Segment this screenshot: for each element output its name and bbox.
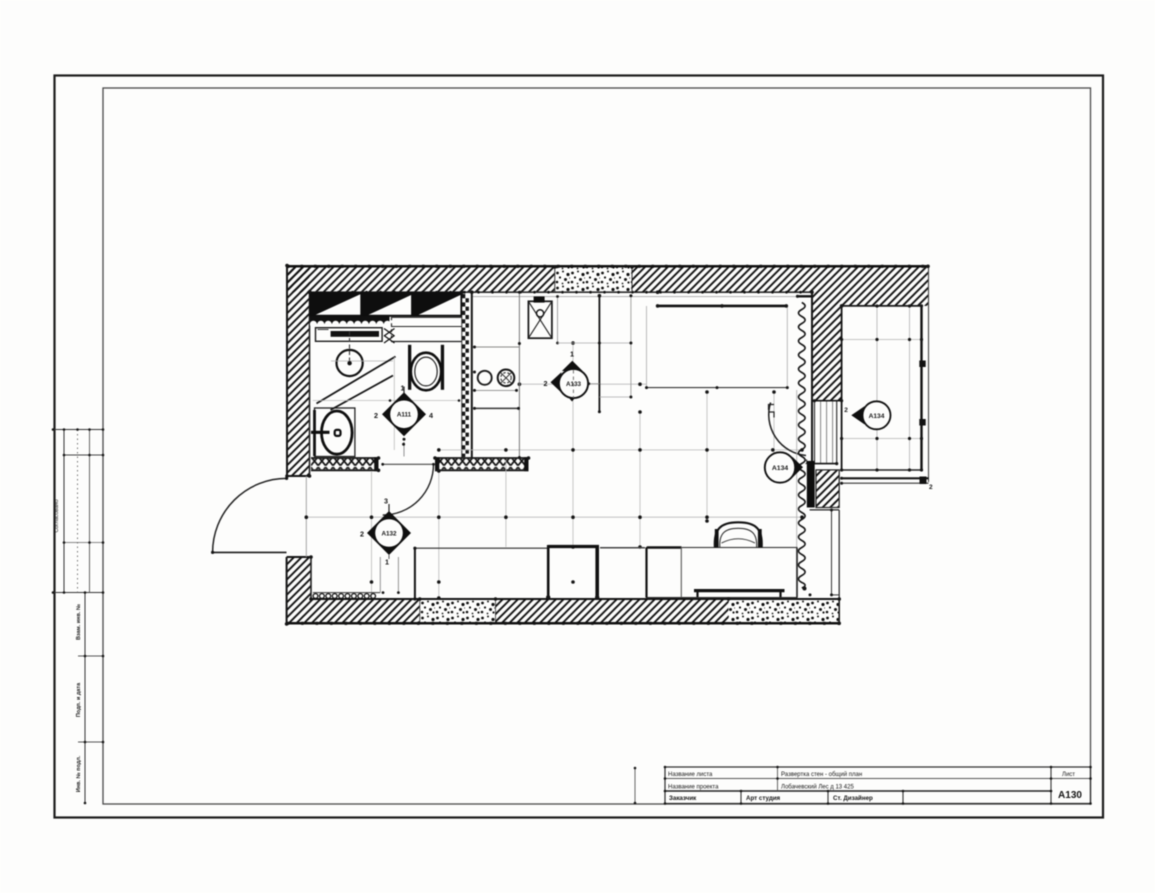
svg-text:2: 2 [929,484,933,491]
svg-text:Развертка стен - общий план: Развертка стен - общий план [781,771,862,778]
svg-text:Название листа: Название листа [668,772,713,778]
svg-text:А134: А134 [772,465,788,472]
svg-text:2: 2 [360,529,364,538]
svg-text:А111: А111 [397,412,412,419]
svg-text:Арт студия: Арт студия [746,795,781,802]
svg-text:4: 4 [429,411,433,420]
svg-text:Инв. № подл.: Инв. № подл. [76,755,82,792]
svg-text:А132: А132 [381,530,397,537]
svg-text:1: 1 [385,558,389,567]
svg-text:Лобачевский Лес д 13 425: Лобачевский Лес д 13 425 [781,784,854,791]
svg-text:Подп. и дата: Подп. и дата [76,682,82,717]
svg-text:А134: А134 [869,413,885,420]
svg-text:Взам. инв. №: Взам. инв. № [76,604,82,640]
svg-text:2: 2 [544,379,548,388]
svg-text:Заказчик: Заказчик [669,795,697,802]
svg-text:А130: А130 [1058,790,1082,801]
svg-text:3: 3 [384,497,388,506]
svg-text:Согласовано: Согласовано [54,499,60,532]
svg-text:Лист: Лист [1062,772,1075,778]
svg-text:2: 2 [374,411,378,420]
svg-text:Название проекта: Название проекта [668,785,719,791]
svg-text:Ст. Дизайнер: Ст. Дизайнер [833,795,873,802]
svg-text:1: 1 [570,350,574,359]
svg-text:2: 2 [844,407,848,414]
